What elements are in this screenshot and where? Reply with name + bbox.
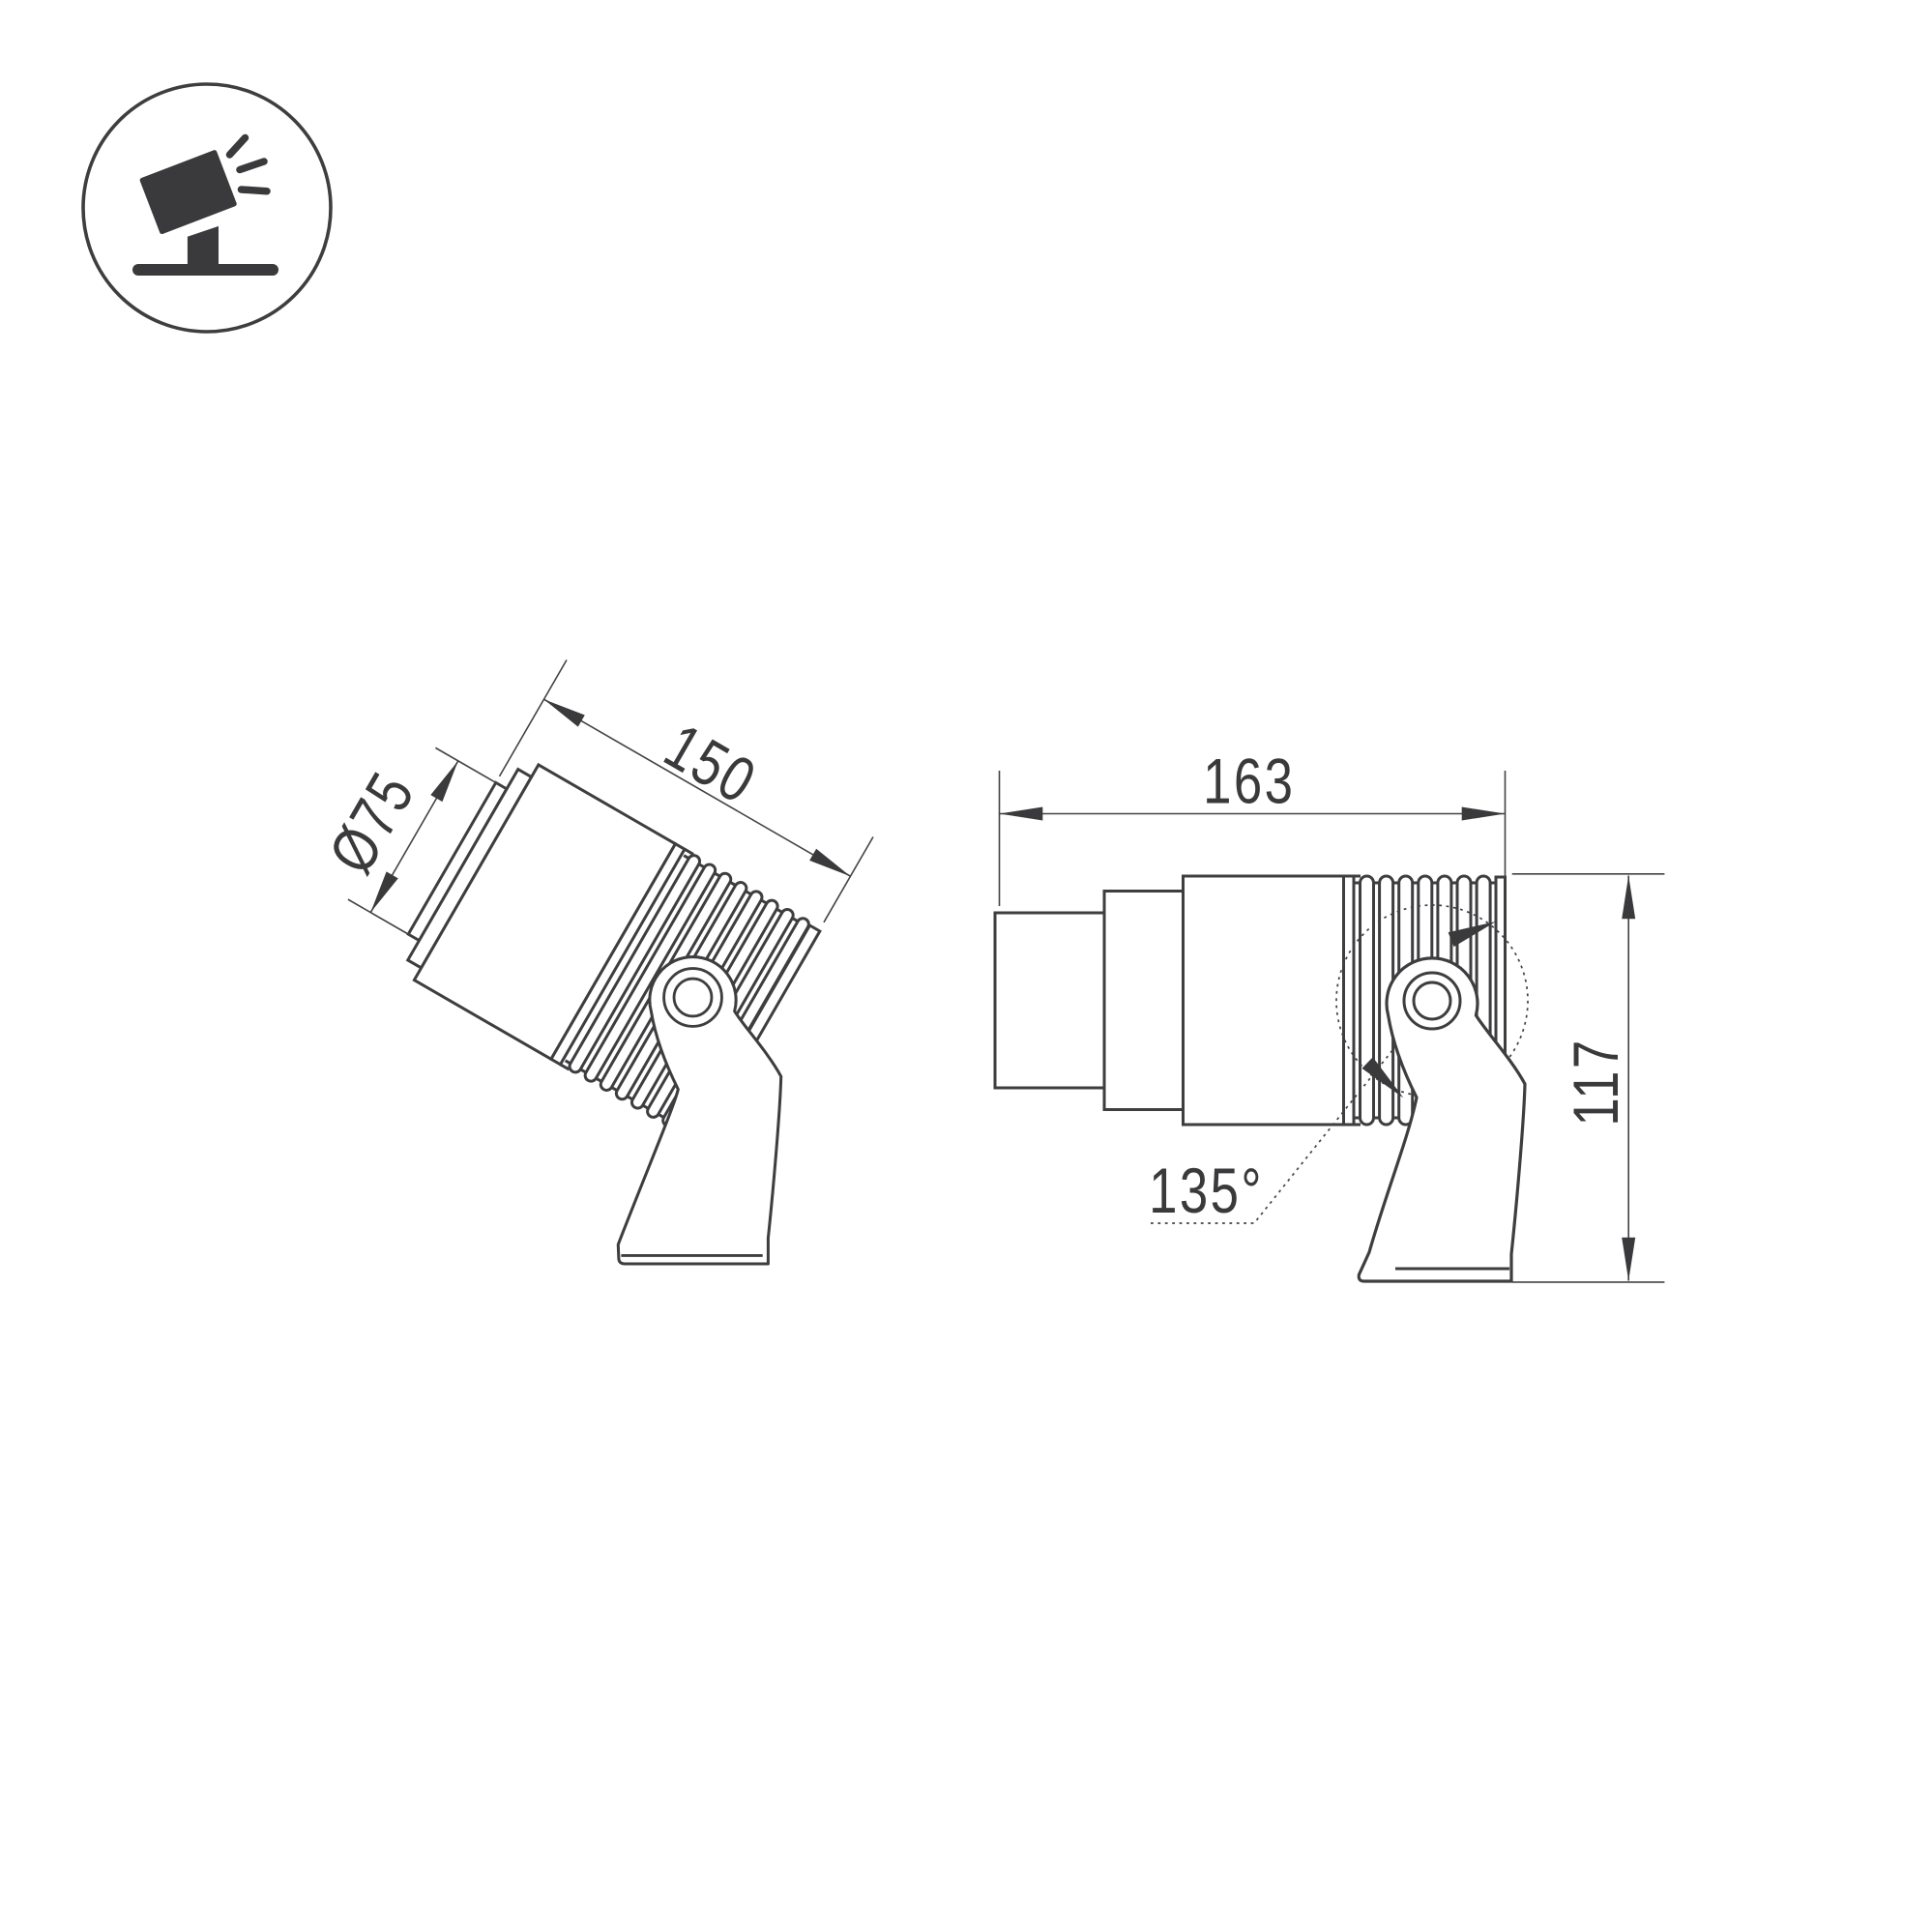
svg-text:135°: 135° — [1149, 1155, 1264, 1226]
svg-text:117: 117 — [1560, 1038, 1631, 1126]
svg-text:163: 163 — [1203, 746, 1295, 817]
